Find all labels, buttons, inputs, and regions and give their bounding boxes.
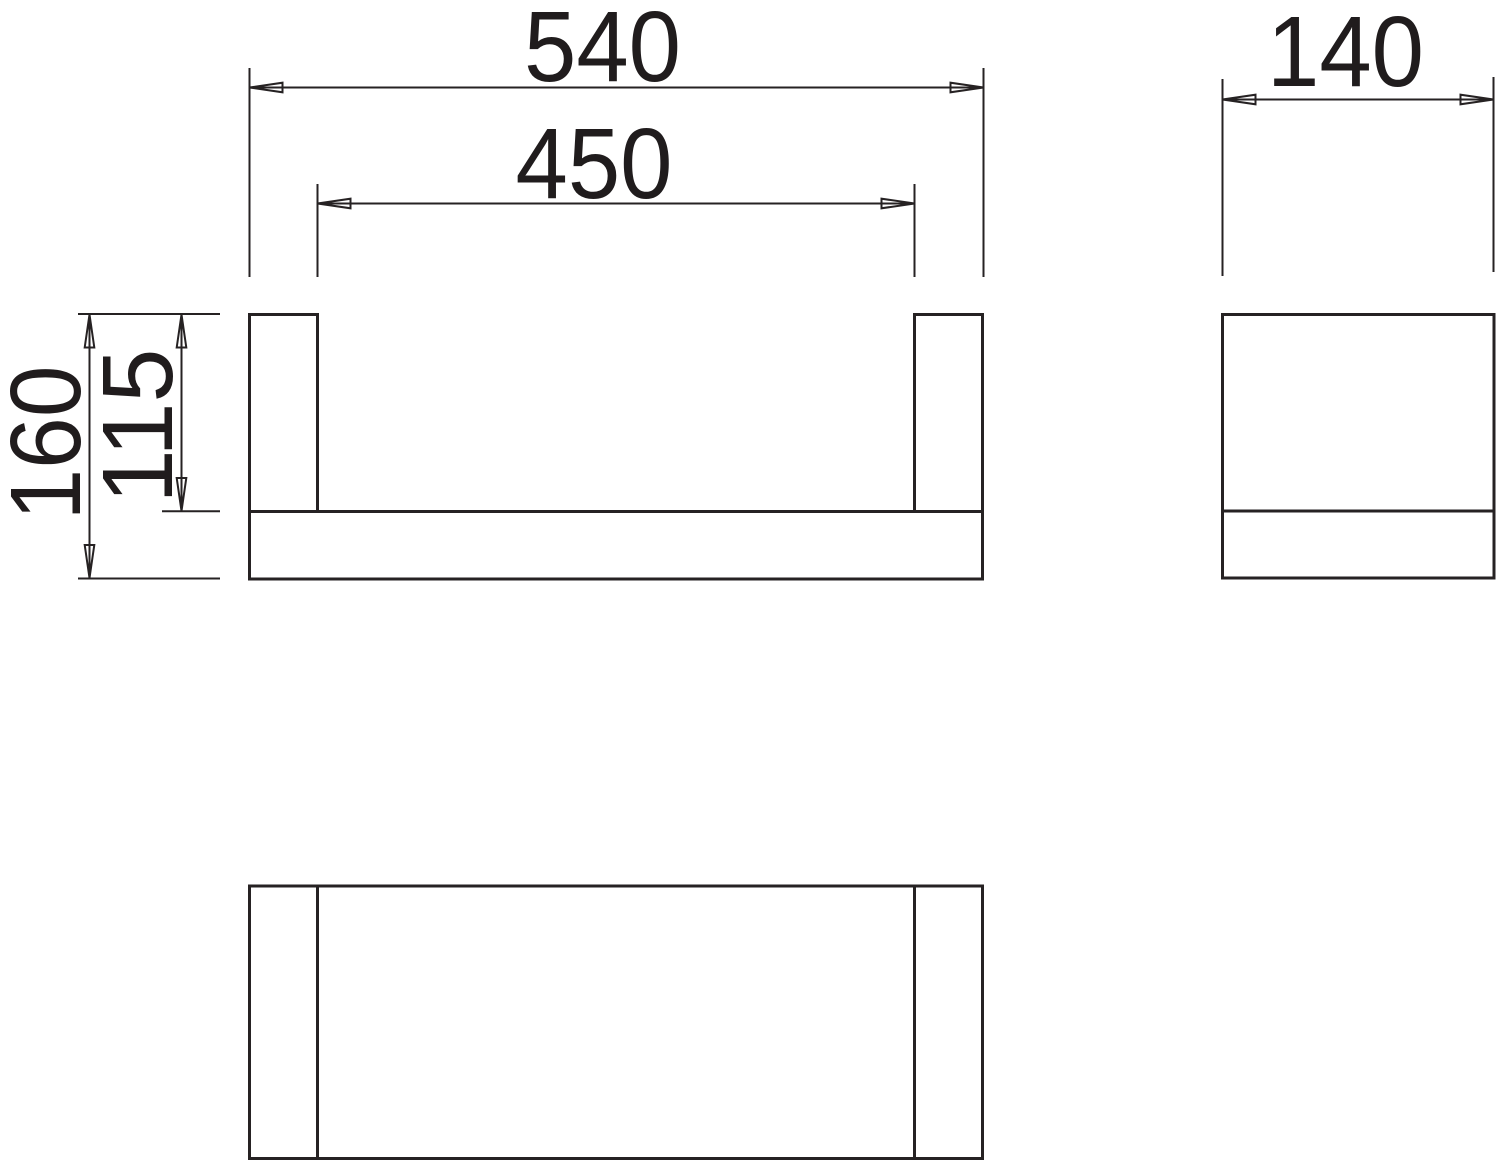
svg-text:140: 140	[1267, 0, 1424, 108]
svg-text:115: 115	[82, 349, 194, 504]
svg-text:450: 450	[516, 108, 673, 220]
svg-text:540: 540	[524, 0, 681, 103]
